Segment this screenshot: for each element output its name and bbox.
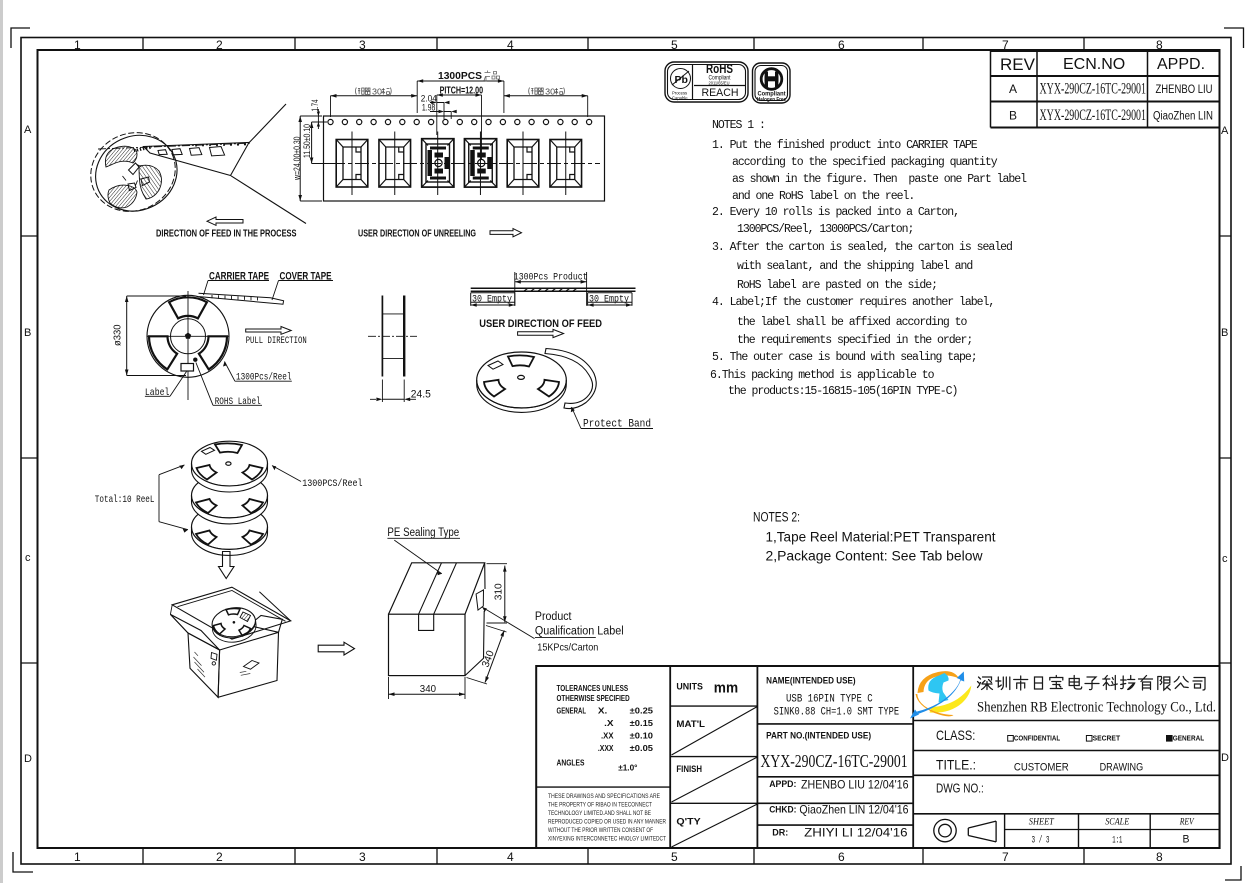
- svg-text:Shenzhen RB Electronic Technol: Shenzhen RB Electronic Technology Co., L…: [977, 700, 1216, 716]
